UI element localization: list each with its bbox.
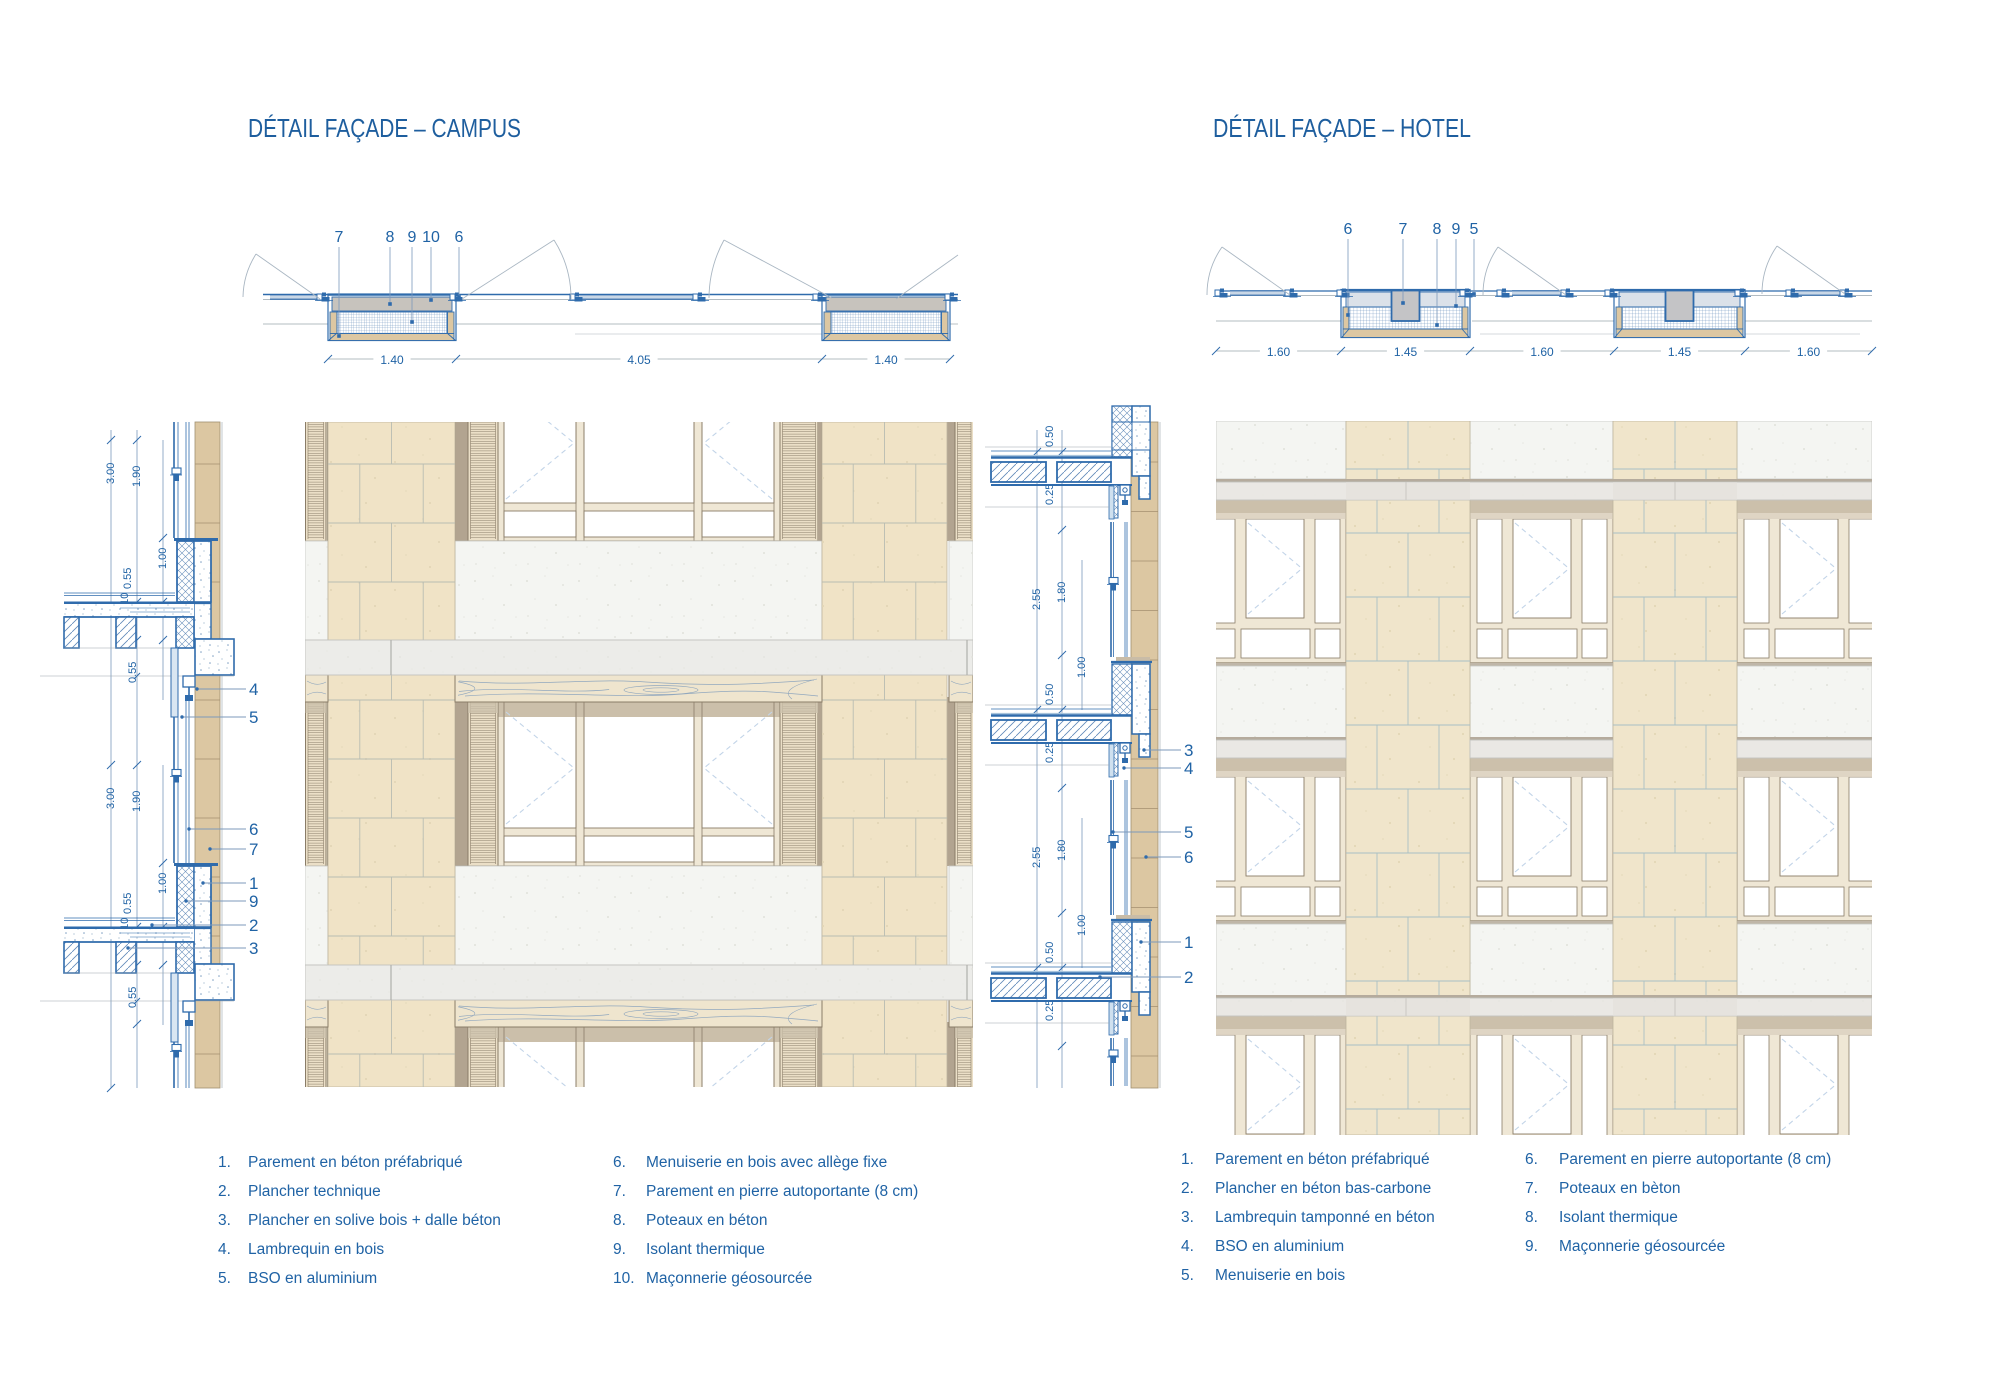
svg-text:DÉTAIL FAÇADE – HOTEL: DÉTAIL FAÇADE – HOTEL — [1213, 113, 1471, 143]
svg-text:0.50: 0.50 — [1044, 942, 1056, 963]
svg-text:9: 9 — [249, 892, 258, 911]
svg-text:Parement en pierre autoportant: Parement en pierre autoportante (8 cm) — [646, 1183, 918, 1200]
svg-text:3.: 3. — [1181, 1209, 1194, 1226]
svg-text:Plancher en solive bois + dall: Plancher en solive bois + dalle béton — [248, 1212, 501, 1229]
svg-text:1: 1 — [1184, 933, 1193, 952]
svg-text:5.: 5. — [1181, 1267, 1194, 1284]
svg-text:Lambrequin tamponné en béton: Lambrequin tamponné en béton — [1215, 1209, 1435, 1226]
svg-text:1.80: 1.80 — [1056, 840, 1068, 861]
svg-text:10.: 10. — [613, 1270, 635, 1287]
svg-text:Parement en béton préfabriqué: Parement en béton préfabriqué — [1215, 1151, 1430, 1168]
svg-text:9.: 9. — [1525, 1238, 1538, 1255]
svg-text:6: 6 — [1344, 221, 1353, 238]
svg-text:2.55: 2.55 — [1031, 847, 1043, 868]
svg-text:Plancher technique: Plancher technique — [248, 1183, 381, 1200]
svg-text:1.40: 1.40 — [874, 353, 898, 367]
svg-text:1.00: 1.00 — [157, 548, 169, 569]
svg-text:DÉTAIL FAÇADE – CAMPUS: DÉTAIL FAÇADE – CAMPUS — [248, 113, 521, 143]
svg-text:9: 9 — [408, 229, 417, 246]
svg-text:6: 6 — [249, 820, 258, 839]
svg-text:Poteaux en béton: Poteaux en béton — [646, 1212, 768, 1229]
svg-text:3: 3 — [249, 939, 258, 958]
svg-text:1.60: 1.60 — [1530, 345, 1554, 359]
svg-text:Poteaux en bèton: Poteaux en bèton — [1559, 1180, 1681, 1197]
svg-text:1: 1 — [249, 874, 258, 893]
svg-text:0.25: 0.25 — [1044, 742, 1056, 763]
svg-text:0.50: 0.50 — [1044, 684, 1056, 705]
svg-text:1.: 1. — [218, 1154, 231, 1171]
svg-text:5: 5 — [1184, 823, 1193, 842]
svg-text:7: 7 — [335, 229, 344, 246]
svg-text:7.: 7. — [1525, 1180, 1538, 1197]
svg-text:1.: 1. — [1181, 1151, 1194, 1168]
svg-text:Menuiserie en bois avec allège: Menuiserie en bois avec allège fixe — [646, 1154, 887, 1171]
svg-text:3.00: 3.00 — [105, 788, 117, 809]
svg-text:5.: 5. — [218, 1270, 231, 1287]
svg-text:4.: 4. — [1181, 1238, 1194, 1255]
svg-text:2.55: 2.55 — [1031, 589, 1043, 610]
svg-text:8.: 8. — [1525, 1209, 1538, 1226]
svg-text:6.: 6. — [613, 1154, 626, 1171]
svg-text:0.55: 0.55 — [127, 662, 139, 683]
svg-text:2.: 2. — [218, 1183, 231, 1200]
svg-text:7.: 7. — [613, 1183, 626, 1200]
svg-text:1.00: 1.00 — [157, 873, 169, 894]
svg-text:7: 7 — [1399, 221, 1408, 238]
svg-text:3.: 3. — [218, 1212, 231, 1229]
svg-text:5: 5 — [1470, 221, 1479, 238]
svg-text:Isolant thermique: Isolant thermique — [646, 1241, 765, 1258]
svg-text:Isolant thermique: Isolant thermique — [1559, 1209, 1678, 1226]
svg-text:Menuiserie en bois: Menuiserie en bois — [1215, 1267, 1345, 1284]
svg-text:8: 8 — [1433, 221, 1442, 238]
svg-text:Parement en béton préfabriqué: Parement en béton préfabriqué — [248, 1154, 463, 1171]
svg-text:Lambrequin en bois: Lambrequin en bois — [248, 1241, 384, 1258]
svg-text:0.55: 0.55 — [122, 568, 134, 589]
svg-text:1.60: 1.60 — [1267, 345, 1291, 359]
svg-text:1.00: 1.00 — [1076, 915, 1088, 936]
svg-text:1.80: 1.80 — [1056, 582, 1068, 603]
svg-text:8.: 8. — [613, 1212, 626, 1229]
svg-text:1.40: 1.40 — [380, 353, 404, 367]
svg-text:1.45: 1.45 — [1668, 345, 1692, 359]
svg-text:0.25: 0.25 — [1044, 484, 1056, 505]
svg-text:Parement en pierre autoportant: Parement en pierre autoportante (8 cm) — [1559, 1151, 1831, 1168]
svg-text:6: 6 — [455, 229, 464, 246]
svg-text:2: 2 — [249, 916, 258, 935]
svg-text:4: 4 — [249, 680, 258, 699]
svg-text:Maçonnerie géosourcée: Maçonnerie géosourcée — [1559, 1238, 1725, 1255]
svg-text:6.: 6. — [1525, 1151, 1538, 1168]
svg-text:0.55: 0.55 — [127, 987, 139, 1008]
svg-text:3.00: 3.00 — [105, 463, 117, 484]
svg-text:7: 7 — [249, 840, 258, 859]
svg-text:9: 9 — [1452, 221, 1461, 238]
svg-text:1.45: 1.45 — [1394, 345, 1418, 359]
svg-text:6: 6 — [1184, 848, 1193, 867]
svg-text:2.: 2. — [1181, 1180, 1194, 1197]
svg-text:0.55: 0.55 — [122, 893, 134, 914]
svg-text:10: 10 — [422, 229, 440, 246]
svg-text:4: 4 — [1184, 759, 1193, 778]
svg-text:1.00: 1.00 — [1076, 657, 1088, 678]
svg-text:BSO en aluminium: BSO en aluminium — [248, 1270, 377, 1287]
svg-text:8: 8 — [386, 229, 395, 246]
svg-text:3: 3 — [1184, 741, 1193, 760]
svg-text:BSO en aluminium: BSO en aluminium — [1215, 1238, 1344, 1255]
svg-text:4.05: 4.05 — [627, 353, 651, 367]
svg-text:9.: 9. — [613, 1241, 626, 1258]
svg-text:Maçonnerie géosourcée: Maçonnerie géosourcée — [646, 1270, 812, 1287]
svg-text:4.: 4. — [218, 1241, 231, 1258]
svg-text:Plancher en béton bas-carbone: Plancher en béton bas-carbone — [1215, 1180, 1431, 1197]
svg-text:1.90: 1.90 — [131, 791, 143, 812]
svg-text:2: 2 — [1184, 968, 1193, 987]
svg-text:1.60: 1.60 — [1797, 345, 1821, 359]
svg-text:0.25: 0.25 — [1044, 1000, 1056, 1021]
svg-text:1.90: 1.90 — [131, 466, 143, 487]
svg-text:0.50: 0.50 — [1044, 426, 1056, 447]
svg-text:5: 5 — [249, 708, 258, 727]
